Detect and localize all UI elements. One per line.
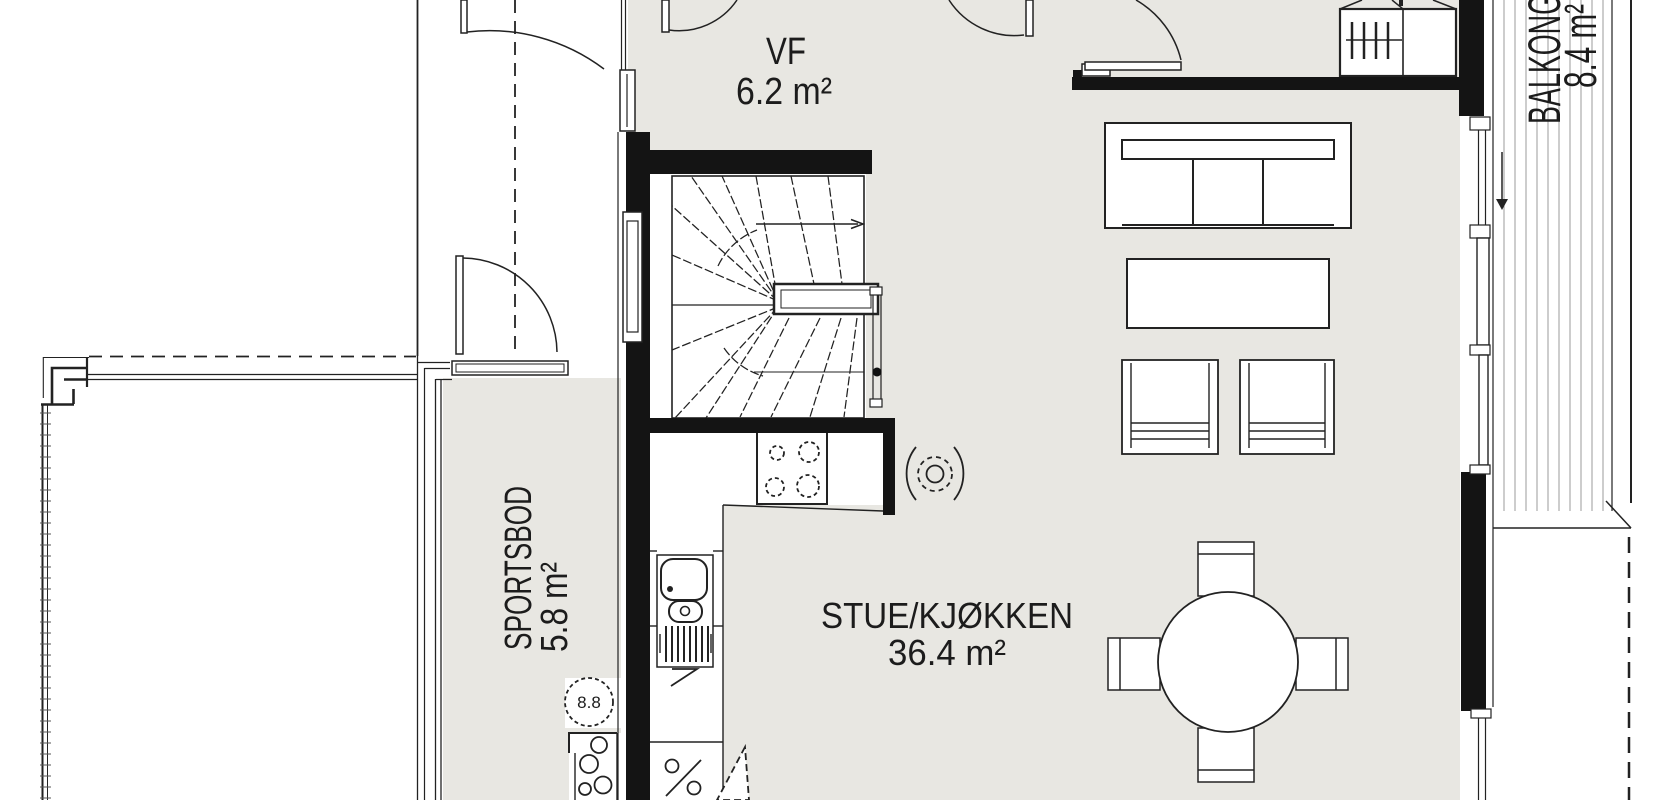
svg-text:5.8 m²: 5.8 m² — [534, 562, 576, 652]
svg-text:6.2 m²: 6.2 m² — [736, 71, 832, 113]
svg-text:36.4 m²: 36.4 m² — [888, 632, 1006, 673]
svg-text:8.8: 8.8 — [577, 693, 601, 712]
svg-text:VF: VF — [766, 31, 806, 73]
svg-text:8.4 m²: 8.4 m² — [1555, 4, 1606, 88]
svg-text:STUE/KJØKKEN: STUE/KJØKKEN — [821, 595, 1073, 636]
